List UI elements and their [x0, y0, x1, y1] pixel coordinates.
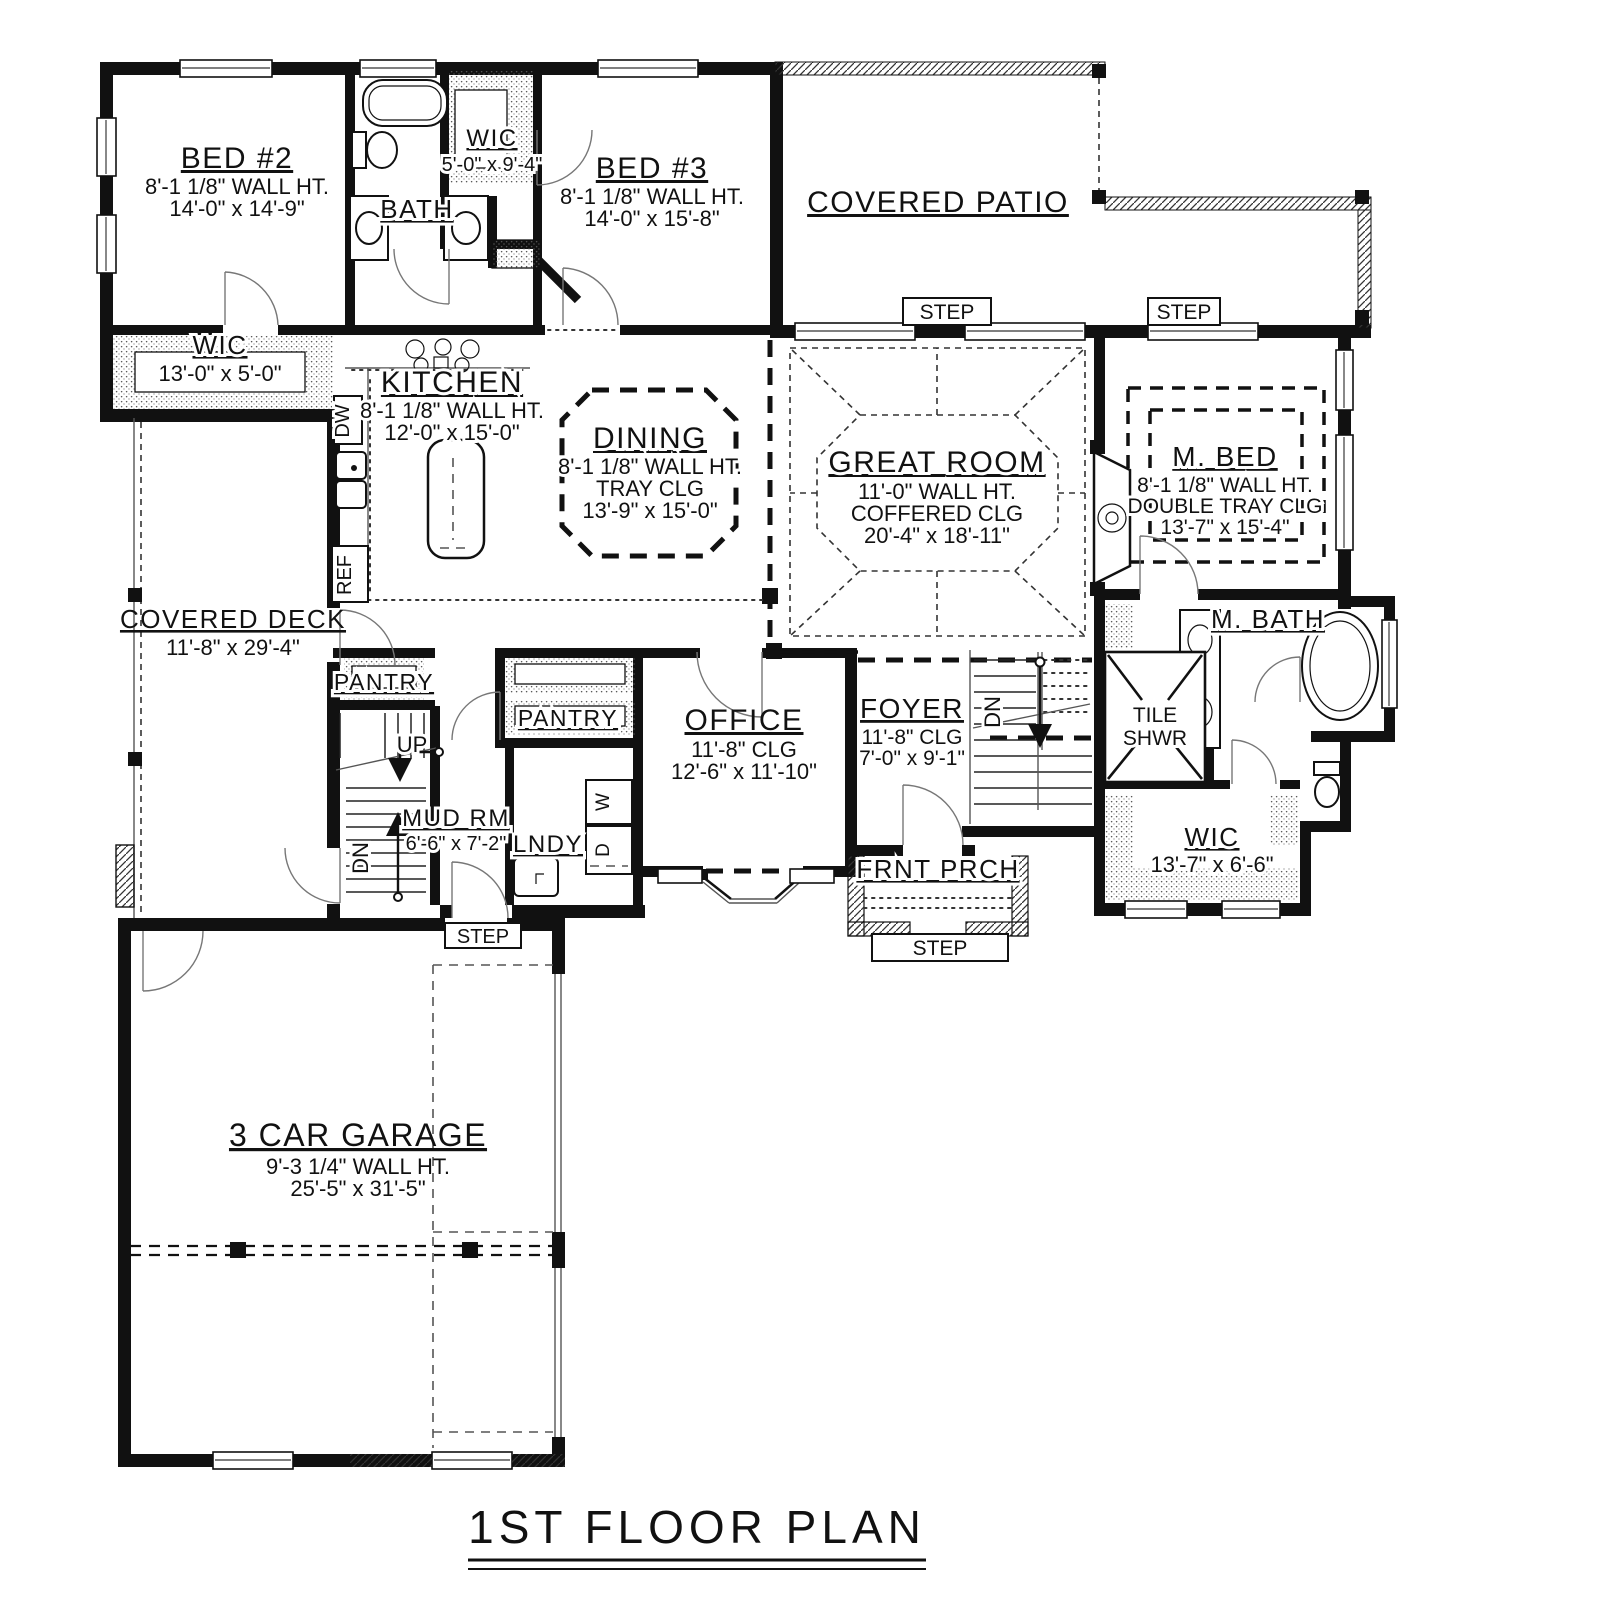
- room-label-office: OFFICE 11'-8" CLG 12'-6" x 11'-10": [671, 704, 817, 784]
- floor-plan-sheet: STEP STEP STEP STEP BED #2 8'-1 1/8" WAL…: [0, 0, 1600, 1600]
- svg-text:GREAT ROOM: GREAT ROOM: [828, 446, 1045, 479]
- kitchen-sink: [336, 452, 366, 508]
- svg-text:20'-4" x 18'-11": 20'-4" x 18'-11": [864, 523, 1010, 548]
- svg-text:WIC: WIC: [466, 125, 517, 152]
- room-label-bath: BATH: [380, 194, 453, 224]
- room-label-front-porch: FRNT PRCH: [856, 854, 1019, 884]
- room-label-deck: COVERED DECK 11'-8" x 29'-4": [120, 604, 346, 660]
- svg-text:7'-0" x 9'-1": 7'-0" x 9'-1": [859, 747, 965, 770]
- svg-text:OFFICE: OFFICE: [685, 704, 804, 737]
- svg-text:14'-0" x 14'-9": 14'-0" x 14'-9": [169, 196, 304, 221]
- dn-label: DN: [348, 842, 373, 874]
- svg-text:WIC: WIC: [192, 330, 247, 360]
- patio-posts: [1092, 64, 1369, 325]
- ref-label: REF: [334, 555, 356, 595]
- step-label: STEP: [913, 937, 968, 960]
- svg-text:COVERED DECK: COVERED DECK: [120, 604, 346, 634]
- step-label: STEP: [457, 926, 509, 948]
- garage-door-opening: [555, 974, 561, 1437]
- room-label-mud-room: MUD RM 6'-6" x 7'-2": [402, 805, 510, 855]
- svg-text:DINING: DINING: [593, 422, 707, 455]
- svg-text:12'-0" x 15'-0": 12'-0" x 15'-0": [384, 420, 519, 445]
- svg-text:13'-0" x 5'-0": 13'-0" x 5'-0": [158, 361, 281, 386]
- step-label: STEP: [920, 301, 975, 324]
- room-label-dining: DINING 8'-1 1/8" WALL HT. TRAY CLG 13'-9…: [558, 422, 742, 523]
- svg-text:11'-8" CLG: 11'-8" CLG: [862, 726, 963, 749]
- kitchen-island: [428, 440, 484, 558]
- step-label: STEP: [1157, 301, 1212, 324]
- svg-text:14'-0" x 15'-8": 14'-0" x 15'-8": [584, 206, 719, 231]
- room-label-garage: 3 CAR GARAGE 9'-3 1/4" WALL HT. 25'-5" x…: [229, 1117, 487, 1201]
- dryer-label: D: [593, 843, 614, 857]
- room-label-wic3: WIC 13'-7" x 6'-6": [1150, 822, 1273, 877]
- svg-text:BED #2: BED #2: [181, 142, 293, 175]
- svg-text:SHWR: SHWR: [1123, 727, 1187, 750]
- svg-text:BED #3: BED #3: [596, 152, 708, 185]
- room-label-bed2: BED #2 8'-1 1/8" WALL HT. 14'-0" x 14'-9…: [145, 142, 329, 221]
- room-label-master-bath: M. BATH: [1211, 604, 1325, 634]
- up-label: UP: [397, 732, 428, 757]
- svg-text:WIC: WIC: [1184, 822, 1239, 852]
- svg-text:KITCHEN: KITCHEN: [381, 366, 523, 399]
- svg-text:3 CAR GARAGE: 3 CAR GARAGE: [229, 1117, 487, 1153]
- room-label-kitchen: KITCHEN 8'-1 1/8" WALL HT. 12'-0" x 15'-…: [360, 366, 544, 445]
- svg-text:M. BED: M. BED: [1172, 441, 1277, 472]
- toilet: [1315, 777, 1339, 807]
- sheet-title: 1ST FLOOR PLAN: [468, 1501, 926, 1569]
- svg-text:MUD RM: MUD RM: [402, 805, 510, 832]
- room-label-pantry1: PANTRY: [334, 669, 434, 695]
- svg-text:11'-8" x 29'-4": 11'-8" x 29'-4": [166, 635, 300, 660]
- room-label-bed3: BED #3 8'-1 1/8" WALL HT. 14'-0" x 15'-8…: [560, 152, 744, 231]
- svg-text:8'-1 1/8" WALL HT.: 8'-1 1/8" WALL HT.: [1137, 474, 1313, 497]
- dw-label: DW: [332, 404, 354, 437]
- svg-text:13'-7" x 6'-6": 13'-7" x 6'-6": [1150, 852, 1273, 877]
- svg-text:TILE: TILE: [1133, 704, 1177, 727]
- room-label-foyer: FOYER 11'-8" CLG 7'-0" x 9'-1": [859, 693, 965, 770]
- svg-text:12'-6" x 11'-10": 12'-6" x 11'-10": [671, 759, 817, 784]
- room-label-master-bed: M. BED 8'-1 1/8" WALL HT. DOUBLE TRAY CL…: [1128, 441, 1323, 539]
- svg-text:25'-5" x 31'-5": 25'-5" x 31'-5": [290, 1176, 425, 1201]
- garage-bay-lines: [130, 965, 553, 1448]
- title-text: 1ST FLOOR PLAN: [468, 1501, 926, 1553]
- svg-text:DOUBLE TRAY CLG: DOUBLE TRAY CLG: [1128, 495, 1323, 518]
- washer-label: W: [593, 793, 614, 811]
- dn-label: DN: [980, 696, 1005, 728]
- room-label-laundry: LNDY: [513, 831, 583, 858]
- room-label-pantry2: PANTRY: [518, 705, 618, 731]
- fireplace-niche: [1094, 452, 1130, 584]
- covered-deck-structure: [116, 418, 142, 918]
- svg-text:13'-9" x 15'-0": 13'-9" x 15'-0": [582, 498, 717, 523]
- svg-text:13'-7" x 15'-4": 13'-7" x 15'-4": [1160, 516, 1289, 539]
- svg-text:6'-6" x 7'-2": 6'-6" x 7'-2": [406, 833, 507, 855]
- room-label-patio: COVERED PATIO: [807, 186, 1069, 219]
- room-label-great-room: GREAT ROOM 11'-0" WALL HT. COFFERED CLG …: [828, 446, 1045, 548]
- svg-text:5'-0" x 9'-4": 5'-0" x 9'-4": [442, 154, 543, 176]
- svg-text:FOYER: FOYER: [860, 693, 964, 724]
- floor-plan-drawing: STEP STEP STEP STEP BED #2 8'-1 1/8" WAL…: [0, 0, 1600, 1600]
